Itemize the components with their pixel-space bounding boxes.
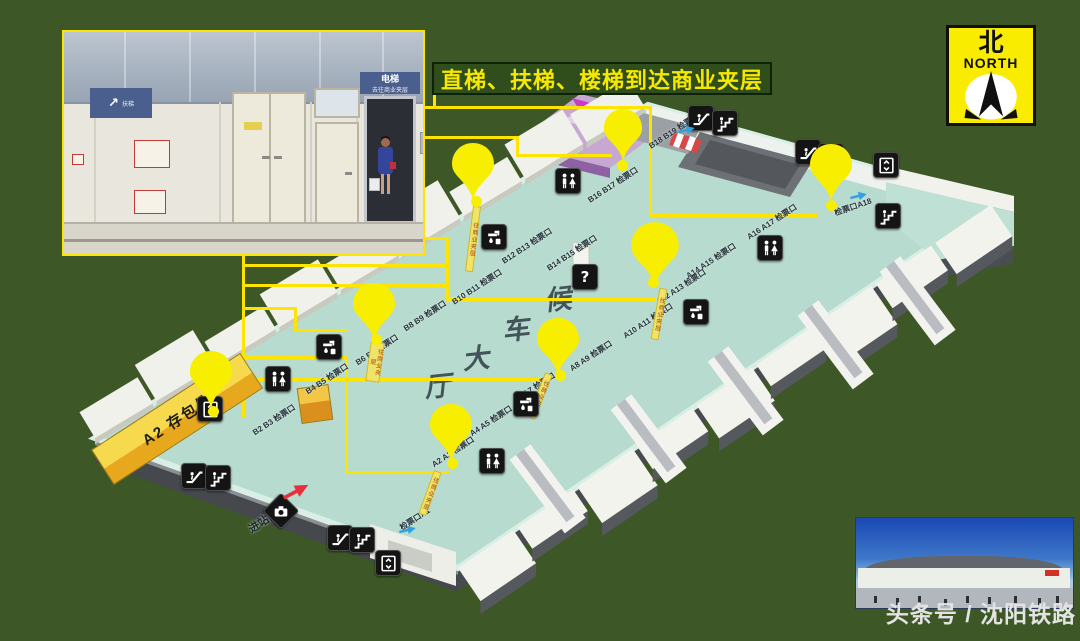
hall-name-char: 车: [502, 306, 533, 348]
stairs-icon: [712, 110, 738, 136]
elevator-icon: [375, 550, 401, 576]
location-balloon-dot: [555, 370, 566, 381]
double-door: [232, 92, 306, 224]
elevator-sign: 电梯 去往商业夹层: [360, 72, 420, 94]
location-balloon: [536, 317, 580, 377]
callout-line: [516, 154, 612, 157]
location-balloon-dot: [447, 458, 458, 469]
hall-name-char: 候: [544, 276, 575, 318]
callout-line: [649, 106, 652, 216]
elevator-call-panel: [420, 132, 425, 154]
station-name-sign: [1045, 570, 1059, 576]
escalator-sign: ↗ 扶梯: [90, 88, 152, 118]
watermark-text: 头条号 / 沈阳铁路: [886, 595, 1076, 629]
callout-line: [420, 136, 519, 139]
location-balloon: [809, 143, 853, 203]
north-hanzi: 北: [978, 30, 1003, 56]
callout-line: [516, 136, 519, 156]
elevator-icon: [873, 152, 899, 178]
location-balloon: [603, 108, 643, 163]
stairs-icon: [349, 527, 375, 553]
toilet-icon: [479, 448, 505, 474]
callout-line: [446, 298, 656, 301]
escalator-icon: [181, 463, 207, 489]
information-symbol: ?: [581, 268, 590, 286]
location-balloon: [429, 403, 473, 463]
escalator-sign-arrow: ↗: [108, 95, 119, 111]
location-balloon-dot: [208, 406, 219, 417]
toilet-icon: [555, 168, 581, 194]
location-balloon: [352, 282, 396, 342]
elevator-sign-title: 电梯: [381, 72, 399, 85]
callout-line: [242, 284, 448, 287]
escalator-sign-text: 扶梯: [122, 99, 134, 108]
fire-notice-sign: [134, 190, 166, 214]
water-fountain-icon: [683, 299, 709, 325]
location-balloon: [189, 350, 233, 410]
compass-needle-icon: [955, 71, 1027, 121]
photo-floor: [64, 222, 423, 254]
stairs-icon: [205, 465, 231, 491]
elevator-sign-subtitle: 去往商业夹层: [372, 85, 408, 94]
callout-line: [242, 307, 297, 310]
station-map-slide: 候 车 大 厅 B18 B19 检票口 B16 B17 检票口 B14 B15 …: [0, 0, 1080, 641]
toilet-icon: [757, 235, 783, 261]
location-balloon-dot: [617, 160, 628, 171]
fire-notice-sign: [72, 154, 84, 165]
callout-line: [242, 264, 448, 267]
water-fountain-icon: [481, 224, 507, 250]
location-balloon-dot: [371, 334, 382, 345]
single-door: [315, 122, 359, 224]
banner-text: 直梯、扶梯、楼梯到达商业夹层: [441, 63, 763, 95]
fire-notice-sign: [134, 140, 170, 168]
hall-name-char: 大: [462, 335, 493, 377]
location-balloon: [451, 142, 495, 202]
elevator-lobby-photo: ↗ 扶梯 电梯 去往商业夹层: [62, 30, 425, 256]
location-balloon-dot: [648, 277, 659, 288]
stairs-icon: [875, 203, 901, 229]
toilet-icon: [265, 366, 291, 392]
callout-line: [294, 307, 297, 331]
north-compass: 北 NORTH: [946, 25, 1036, 126]
north-label: NORTH: [964, 56, 1019, 70]
water-fountain-icon: [513, 391, 539, 417]
callout-line: [294, 329, 348, 332]
callout-line: [446, 237, 449, 300]
mezzanine-access-banner: 直梯、扶梯、楼梯到达商业夹层: [432, 62, 772, 95]
station-building: [858, 568, 1070, 590]
location-balloon-dot: [826, 200, 837, 211]
hall-name-char: 厅: [424, 363, 455, 405]
water-fountain-icon: [316, 334, 342, 360]
location-balloon-dot: [471, 196, 482, 207]
callout-line: [345, 356, 348, 474]
transom-window: [314, 88, 360, 118]
information-icon: ?: [572, 264, 598, 290]
